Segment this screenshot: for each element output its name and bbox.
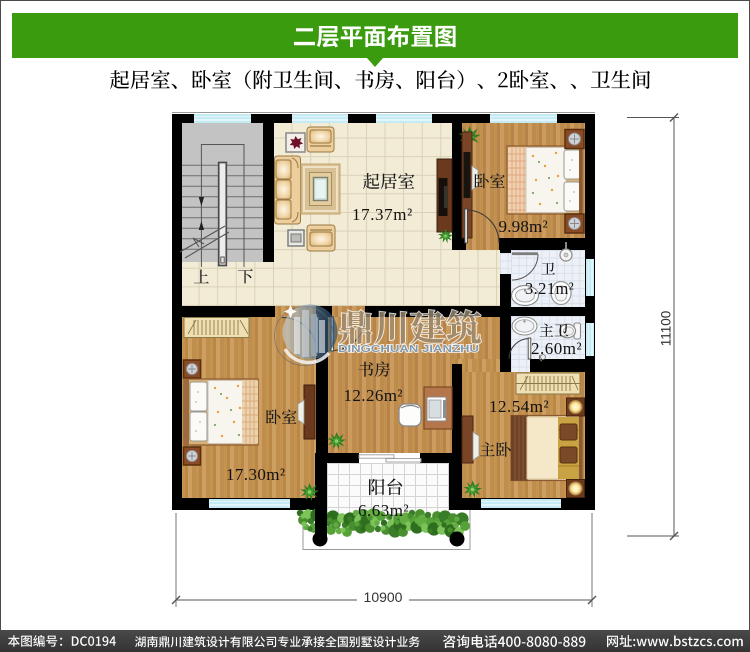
svg-text:DINGCHUAN JIANZHU: DINGCHUAN JIANZHU <box>338 344 479 355</box>
